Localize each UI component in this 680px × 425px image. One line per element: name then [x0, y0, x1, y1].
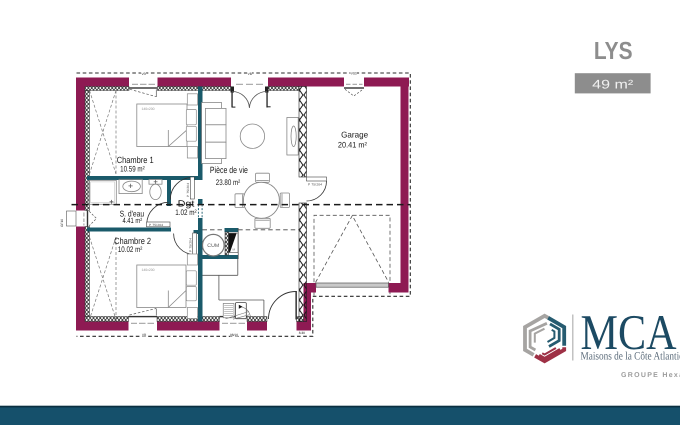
svg-text:140x200: 140x200 — [142, 107, 155, 111]
svg-text:20.41 m²: 20.41 m² — [338, 141, 367, 150]
svg-text:VR: VR — [142, 333, 147, 337]
svg-text:GF10: GF10 — [60, 219, 64, 227]
svg-text:P 75/204: P 75/204 — [186, 183, 190, 197]
svg-text:GROUPE Hexaôm: GROUPE Hexaôm — [621, 371, 680, 379]
svg-text:LYS: LYS — [594, 38, 633, 65]
svg-text:8.30: 8.30 — [299, 331, 305, 335]
svg-text:P 75/204: P 75/204 — [308, 182, 322, 186]
svg-text:08/10: 08/10 — [230, 333, 238, 337]
svg-text:140x200: 140x200 — [142, 268, 155, 272]
svg-text:VS1: VS1 — [351, 72, 357, 76]
svg-text:CUM: CUM — [207, 243, 219, 249]
svg-text:P 75/204: P 75/204 — [189, 238, 193, 252]
svg-text:VB: VB — [248, 72, 252, 76]
svg-text:23.80 m²: 23.80 m² — [216, 178, 241, 187]
svg-text:10.02 m²: 10.02 m² — [118, 245, 143, 254]
svg-text:VR: VR — [141, 72, 146, 76]
svg-text:Pièce de vie: Pièce de vie — [210, 165, 248, 175]
svg-text:P 75/204: P 75/204 — [149, 223, 163, 227]
svg-text:Maisons de la Côte Atlantique: Maisons de la Côte Atlantique — [581, 351, 680, 363]
svg-text:Garage: Garage — [341, 130, 368, 140]
svg-text:4.41 m²: 4.41 m² — [122, 216, 142, 225]
svg-text:1.02 m²: 1.02 m² — [175, 208, 197, 217]
svg-text:49 m²: 49 m² — [592, 77, 633, 91]
svg-text:10.59 m²: 10.59 m² — [120, 164, 145, 173]
